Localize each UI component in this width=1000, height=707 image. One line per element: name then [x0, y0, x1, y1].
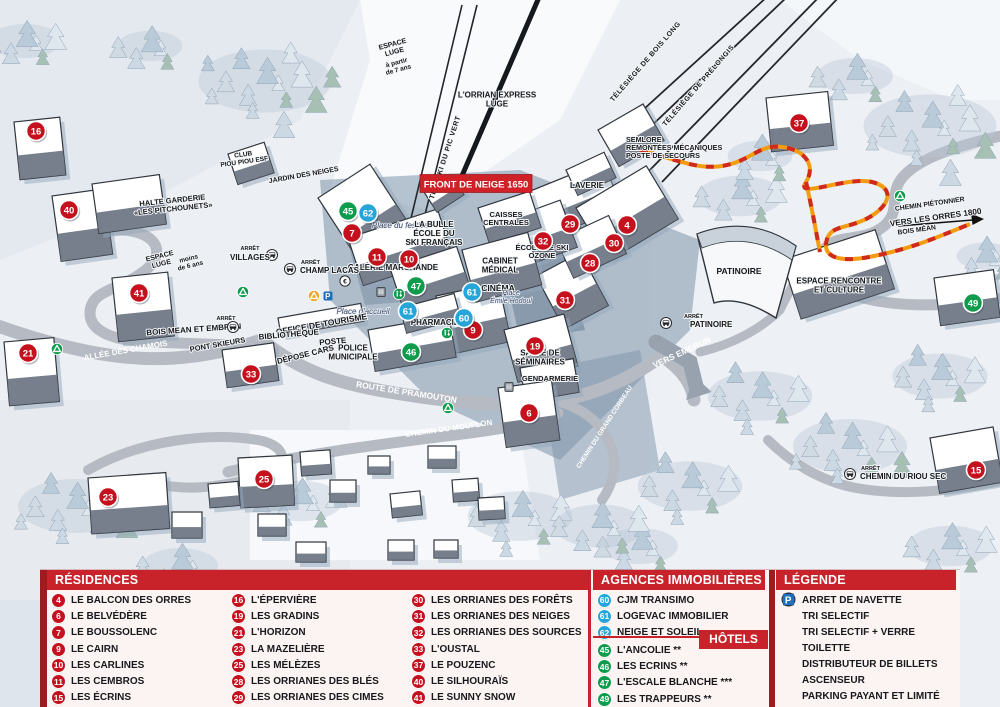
recycle-green-icon	[237, 286, 248, 297]
svg-text:29: 29	[565, 219, 576, 230]
residence-item-label: L'ÉPERVIÈRE	[251, 595, 317, 606]
marker-number-badge: 11	[52, 675, 65, 688]
legende-item: ASCENSEUR	[781, 672, 940, 688]
marker-number-badge: 46	[598, 660, 611, 673]
residence-item: 15LES ÉCRINS	[52, 690, 191, 706]
toilet-icon	[781, 641, 796, 656]
toilet-icon	[441, 327, 452, 338]
recycle-yellow-icon	[308, 290, 319, 301]
marker-number-badge: 29	[232, 691, 245, 704]
euro-icon: €	[781, 657, 796, 672]
svg-text:45: 45	[343, 206, 354, 217]
svg-text:61: 61	[403, 306, 414, 317]
recycle-green-icon	[894, 190, 905, 201]
residence-item-label: LE CAIRN	[71, 644, 118, 655]
residence-item: 6LE BELVÉDÈRE	[52, 608, 191, 624]
legende-item-label: ARRET DE NAVETTE	[802, 595, 902, 606]
residence-item-label: LE SUNNY SNOW	[431, 692, 515, 703]
hotel-item-label: LES ECRINS **	[617, 661, 688, 672]
euro-icon: €	[340, 276, 350, 286]
marker-number-badge: 61	[598, 610, 611, 623]
hotel-item: 45L'ANCOLIE **	[598, 642, 732, 658]
residence-item-label: LE BOUSSOLENC	[71, 627, 157, 638]
agence-item: 61LOGEVAC IMMOBILIER	[598, 608, 728, 624]
marker-number-badge: 49	[598, 693, 611, 706]
residence-item-label: LE SILHOURAÏS	[431, 676, 508, 687]
svg-text:41: 41	[134, 288, 145, 299]
svg-text:28: 28	[585, 258, 596, 269]
map-label-gendarmerie: GENDARMERIE	[522, 374, 578, 383]
legende-item: TOILETTE	[781, 640, 940, 656]
marker-number-badge: 9	[52, 643, 65, 656]
panel-separator	[588, 570, 591, 707]
svg-text:47: 47	[411, 281, 422, 292]
residence-item: 40LE SILHOURAÏS	[412, 673, 582, 689]
svg-text:P: P	[785, 595, 792, 606]
residence-item-label: LA MAZELIÈRE	[251, 644, 325, 655]
hotel-item-label: L'ESCALE BLANCHE ***	[617, 677, 732, 688]
agence-item: 60CJM TRANSIMO	[598, 592, 728, 608]
residence-item: 33L'OUSTAL	[412, 641, 582, 657]
residence-item: 25LES MÉLÈZES	[232, 657, 384, 673]
residence-item: 21L'HORIZON	[232, 625, 384, 641]
residence-item-label: LES GRADINS	[251, 611, 319, 622]
marker-number-badge: 60	[598, 594, 611, 607]
legende-item-label: PARKING PAYANT ET LIMITÉ	[802, 691, 940, 702]
residence-item: 9LE CAIRN	[52, 641, 191, 657]
map-label-cabinet: CABINETMÉDICAL	[482, 257, 519, 275]
bus-icon	[284, 263, 295, 274]
svg-text:49: 49	[968, 298, 979, 309]
marker-number-badge: 16	[232, 594, 245, 607]
svg-text:P: P	[325, 292, 330, 301]
svg-text:23: 23	[103, 492, 114, 503]
hotel-item-label: LES TRAPPEURS **	[617, 694, 711, 705]
marker-number-badge: 47	[598, 676, 611, 689]
svg-text:46: 46	[406, 347, 417, 358]
marker-number-badge: 28	[232, 675, 245, 688]
residence-item-label: LES CEMBROS	[71, 676, 144, 687]
parking-icon: P	[324, 292, 333, 302]
residence-item: 31LES ORRIANES DES NEIGES	[412, 608, 582, 624]
front-de-neige-banner: FRONT DE NEIGE 1650	[420, 175, 532, 193]
marker-number-badge: 23	[232, 643, 245, 656]
legende-item: PPARKING PAYANT ET LIMITÉ	[781, 689, 940, 705]
resort-map-page: ESPACELUGEà partirde 7 ansTÉLÉSKI DU PIC…	[0, 0, 1000, 707]
marker-number-badge: 37	[412, 659, 425, 672]
bus-stop-name: CHAMP LACAS	[300, 266, 360, 275]
map-label-patinoire: PATINOIRE	[716, 266, 761, 276]
recycle-green-icon	[51, 343, 62, 354]
legende-item-label: DISTRIBUTEUR DE BILLETS	[802, 659, 938, 670]
agences-header: AGENCES IMMOBILIÈRES	[593, 570, 765, 590]
hotel-item: 49LES TRAPPEURS **	[598, 691, 732, 707]
panel-left-border	[40, 570, 47, 707]
legende-item-label: TRI SELECTIF	[802, 611, 869, 622]
svg-text:32: 32	[538, 236, 549, 247]
residence-item: 28LES ORRIANES DES BLÉS	[232, 673, 384, 689]
svg-text:11: 11	[372, 252, 383, 263]
svg-text:33: 33	[246, 369, 257, 380]
svg-text:30: 30	[609, 238, 620, 249]
svg-text:10: 10	[404, 254, 415, 265]
residence-item: 19LES GRADINS	[232, 608, 384, 624]
legende-item: ARRET DE NAVETTE	[781, 592, 940, 608]
recycle-green-icon	[442, 402, 453, 413]
marker-number-badge: 19	[232, 610, 245, 623]
recycle-green-icon	[781, 609, 796, 624]
svg-text:25: 25	[259, 474, 270, 485]
arret-label: ARRÊT	[684, 312, 704, 320]
residence-item-label: LE POUZENC	[431, 660, 495, 671]
svg-text:16: 16	[31, 126, 42, 137]
hotel-item-label: L'ANCOLIE **	[617, 645, 681, 656]
residence-item: 32LES ORRIANES DES SOURCES	[412, 625, 582, 641]
svg-text:15: 15	[971, 465, 982, 476]
residence-item: 11LES CEMBROS	[52, 673, 191, 689]
residence-item: 23LA MAZELIÈRE	[232, 641, 384, 657]
residence-item-label: LES MÉLÈZES	[251, 660, 320, 671]
info-panel: RÉSIDENCES AGENCES IMMOBILIÈRES LÉGENDE …	[40, 570, 960, 707]
svg-text:7: 7	[349, 228, 354, 239]
elevator-icon	[781, 673, 796, 688]
svg-text:FRONT DE NEIGE 1650: FRONT DE NEIGE 1650	[424, 179, 529, 190]
svg-text:40: 40	[64, 205, 75, 216]
marker-number-badge: 40	[412, 675, 425, 688]
hotels-divider	[593, 636, 699, 638]
elevator-icon	[377, 288, 385, 297]
marker-number-badge: 21	[232, 626, 245, 639]
residence-item: 7LE BOUSSOLENC	[52, 625, 191, 641]
marker-number-badge: 15	[52, 691, 65, 704]
svg-text:19: 19	[530, 341, 541, 352]
arret-label: ARRÊT	[217, 314, 237, 322]
residence-item-label: LES ORRIANES DES CIMES	[251, 692, 384, 703]
map-label-galerie-marchande: GALERIE MARCHANDE	[348, 263, 439, 272]
residence-item-label: LE BELVÉDÈRE	[71, 611, 147, 622]
bus-icon	[660, 317, 671, 328]
agence-item-label: LOGEVAC IMMOBILIER	[617, 611, 728, 622]
map-label-pharmacie: PHARMACIE	[411, 318, 460, 327]
arret-label: ARRÊT	[861, 464, 881, 472]
svg-text:37: 37	[794, 118, 805, 129]
residences-column-3: 30LES ORRIANES DES FORÊTS31LES ORRIANES …	[412, 592, 582, 706]
bus-stop-name: CHEMIN DU RIOU SEC	[860, 472, 946, 481]
residence-item: 30LES ORRIANES DES FORÊTS	[412, 592, 582, 608]
residences-column-1: 4LE BALCON DES ORRES6LE BELVÉDÈRE7LE BOU…	[52, 592, 191, 706]
residence-item-label: LES ÉCRINS	[71, 692, 131, 703]
marker-number-badge: 10	[52, 659, 65, 672]
residence-item: 41LE SUNNY SNOW	[412, 690, 582, 706]
residence-item-label: LE BALCON DES ORRES	[71, 595, 191, 606]
parking-icon: P	[781, 689, 796, 704]
bus-stop-name: PATINOIRE	[690, 320, 733, 329]
svg-text:€: €	[343, 278, 347, 285]
svg-text:4: 4	[624, 220, 630, 231]
recycle-yellow-icon	[781, 625, 796, 640]
residence-item-label: LES CARLINES	[71, 660, 144, 671]
residence-item: 37LE POUZENC	[412, 657, 582, 673]
arret-label: ARRÊT	[301, 258, 321, 266]
residences-header: RÉSIDENCES	[47, 570, 588, 590]
legende-item: TRI SELECTIF	[781, 608, 940, 624]
marker-number-badge: 30	[412, 594, 425, 607]
hotels-list: 45L'ANCOLIE **46LES ECRINS **47L'ESCALE …	[598, 642, 732, 707]
legende-item: €DISTRIBUTEUR DE BILLETS	[781, 656, 940, 672]
marker-number-badge: 45	[598, 644, 611, 657]
legende-list: ARRET DE NAVETTETRI SELECTIFTRI SELECTIF…	[781, 592, 940, 705]
residence-item: 16L'ÉPERVIÈRE	[232, 592, 384, 608]
legende-header: LÉGENDE	[776, 570, 956, 590]
bus-icon	[844, 468, 855, 479]
marker-number-badge: 25	[232, 659, 245, 672]
panel-separator	[769, 570, 775, 707]
elevator-icon	[505, 383, 513, 392]
residence-item: 10LES CARLINES	[52, 657, 191, 673]
legende-item-label: TRI SELECTIF + VERRE	[802, 627, 915, 638]
bus-icon	[227, 321, 238, 332]
marker-number-badge: 6	[52, 610, 65, 623]
residence-item-label: L'HORIZON	[251, 627, 306, 638]
residences-column-2: 16L'ÉPERVIÈRE19LES GRADINS21L'HORIZON23L…	[232, 592, 384, 706]
marker-number-badge: 41	[412, 691, 425, 704]
bus-stop-name: VILLAGES	[230, 253, 271, 262]
residence-item-label: LES ORRIANES DES FORÊTS	[431, 595, 573, 606]
marker-number-badge: 31	[412, 610, 425, 623]
residence-item-label: LES ORRIANES DES BLÉS	[251, 676, 379, 687]
hotel-item: 46LES ECRINS **	[598, 658, 732, 674]
toilet-icon	[393, 288, 404, 299]
hotel-item: 47L'ESCALE BLANCHE ***	[598, 675, 732, 691]
svg-text:60: 60	[459, 313, 470, 324]
svg-text:21: 21	[23, 348, 34, 359]
residence-item: 4LE BALCON DES ORRES	[52, 592, 191, 608]
svg-text:62: 62	[363, 208, 374, 219]
residence-item-label: LES ORRIANES DES NEIGES	[431, 611, 570, 622]
legende-item-label: TOILETTE	[802, 643, 850, 654]
svg-text:31: 31	[560, 295, 571, 306]
marker-number-badge: 4	[52, 594, 65, 607]
map-label-laverie: LAVERIE	[570, 181, 605, 190]
residence-item: 29LES ORRIANES DES CIMES	[232, 690, 384, 706]
marker-number-badge: 7	[52, 626, 65, 639]
arret-label: ARRÊT	[241, 244, 261, 252]
residence-item-label: L'OUSTAL	[431, 644, 480, 655]
residence-item-label: LES ORRIANES DES SOURCES	[431, 627, 582, 638]
legende-item: TRI SELECTIF + VERRE	[781, 624, 940, 640]
svg-text:61: 61	[467, 287, 478, 298]
legende-item-label: ASCENSEUR	[802, 675, 865, 686]
marker-number-badge: 33	[412, 643, 425, 656]
agence-item-label: CJM TRANSIMO	[617, 595, 694, 606]
marker-number-badge: 32	[412, 626, 425, 639]
map-label-caisses: CAISSESCENTRALES	[483, 210, 529, 227]
svg-text:6: 6	[526, 408, 531, 419]
